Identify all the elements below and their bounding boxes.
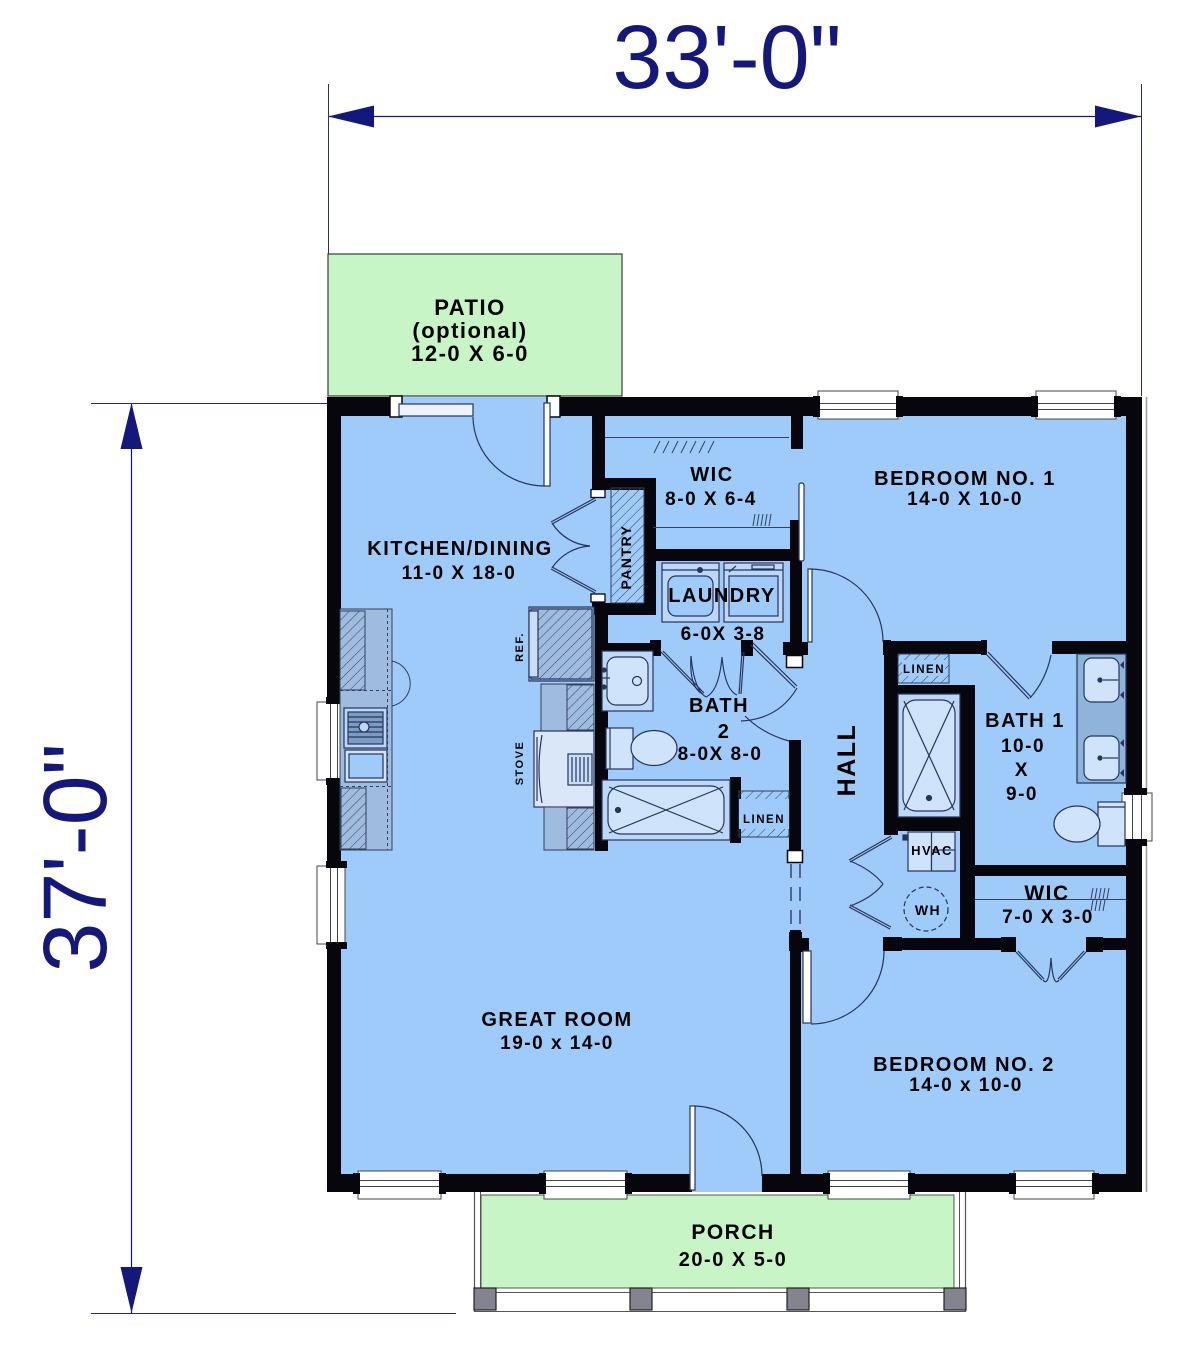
svg-text:REF.: REF.	[514, 632, 526, 662]
svg-text:(optional): (optional)	[412, 318, 527, 343]
svg-text:8-0X 8-0: 8-0X 8-0	[678, 744, 763, 765]
svg-text:37'-0": 37'-0"	[26, 743, 126, 972]
svg-text:14-0 X 10-0: 14-0 X 10-0	[907, 489, 1023, 510]
svg-text:6-0X 3-8: 6-0X 3-8	[681, 624, 766, 645]
svg-text:2: 2	[718, 721, 731, 743]
svg-text:X: X	[1015, 760, 1029, 781]
svg-text:33'-0": 33'-0"	[612, 8, 841, 108]
svg-text:14-0 x 10-0: 14-0 x 10-0	[909, 1075, 1023, 1096]
svg-text:7-0 X 3-0: 7-0 X 3-0	[1002, 907, 1094, 928]
svg-text:BEDROOM NO. 1: BEDROOM NO. 1	[874, 468, 1056, 490]
svg-text:HVAC: HVAC	[911, 843, 953, 858]
svg-text:9-0: 9-0	[1006, 784, 1038, 805]
svg-text:WIC: WIC	[690, 464, 733, 486]
svg-text:BATH: BATH	[689, 695, 749, 717]
svg-text:LINEN: LINEN	[903, 664, 945, 676]
svg-text:LINEN: LINEN	[743, 814, 785, 826]
svg-text:11-0 X 18-0: 11-0 X 18-0	[402, 563, 517, 584]
svg-text:PORCH: PORCH	[691, 1221, 774, 1244]
svg-text:12-0 X 6-0: 12-0 X 6-0	[411, 341, 529, 366]
svg-text:PATIO: PATIO	[434, 295, 505, 320]
svg-text:KITCHEN/DINING: KITCHEN/DINING	[367, 538, 552, 560]
svg-text:BATH 1: BATH 1	[985, 710, 1065, 732]
svg-text:GREAT ROOM: GREAT ROOM	[481, 1009, 632, 1031]
svg-text:PANTRY: PANTRY	[618, 525, 634, 590]
svg-text:LAUNDRY: LAUNDRY	[668, 585, 776, 607]
svg-text:STOVE: STOVE	[514, 741, 526, 786]
svg-text:10-0: 10-0	[1001, 736, 1045, 757]
svg-text:WH: WH	[915, 902, 941, 918]
svg-text:20-0 X 5-0: 20-0 X 5-0	[679, 1249, 787, 1271]
svg-text:8-0 X 6-4: 8-0 X 6-4	[665, 489, 757, 510]
svg-text:19-0 x 14-0: 19-0 x 14-0	[500, 1033, 614, 1054]
svg-text:HALL: HALL	[833, 724, 861, 797]
svg-text:WIC: WIC	[1024, 882, 1069, 905]
svg-text:BEDROOM NO. 2: BEDROOM NO. 2	[873, 1054, 1055, 1076]
